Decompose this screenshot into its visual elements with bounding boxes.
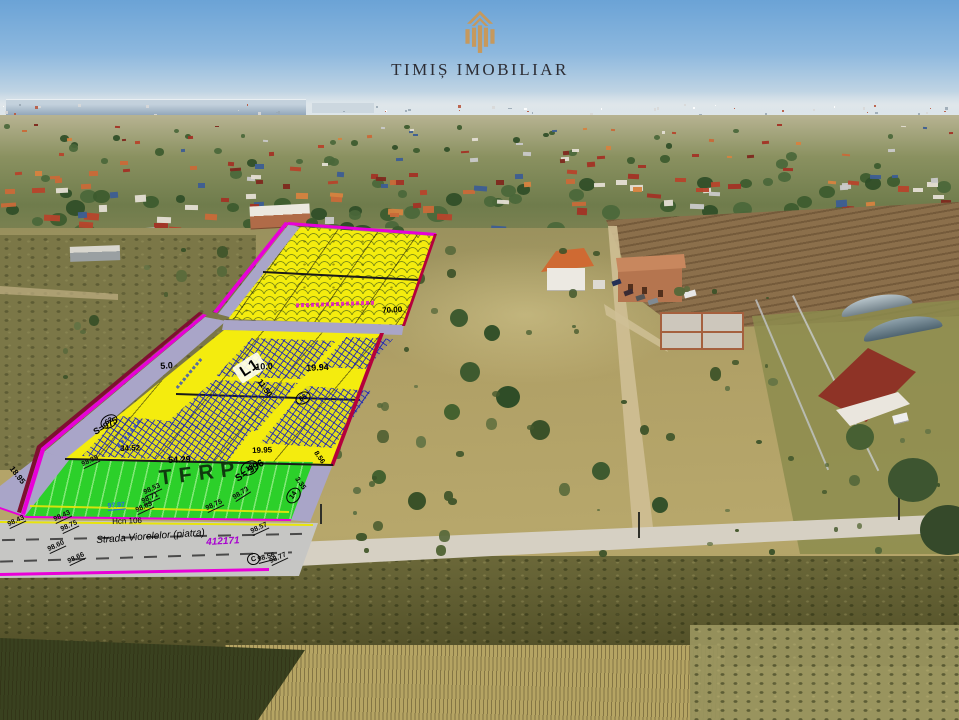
- field-bush: [710, 367, 722, 381]
- field-bush: [732, 360, 738, 365]
- dim-34-52: 34.52: [120, 444, 140, 453]
- field-bush: [559, 483, 570, 496]
- field-bush: [526, 330, 532, 335]
- field-bush: [416, 436, 426, 447]
- field-bush: [574, 329, 579, 334]
- field-bush: [436, 545, 446, 556]
- brand-name: TIMIȘ IMOBILIAR: [380, 60, 580, 80]
- field-bush: [725, 386, 730, 391]
- field-bush: [937, 483, 941, 487]
- field-bush: [849, 475, 860, 486]
- building-columns-icon: [457, 8, 503, 58]
- field-bush: [825, 463, 829, 467]
- field-bush: [364, 548, 369, 553]
- field-bush: [63, 348, 69, 354]
- field-bush: [765, 364, 769, 368]
- field-bush: [559, 248, 566, 254]
- field-bush: [788, 456, 794, 462]
- field-bush: [74, 322, 81, 330]
- field-bush: [63, 375, 69, 379]
- field-bush: [356, 533, 367, 541]
- field-bush: [766, 297, 769, 300]
- field-bush: [431, 308, 438, 313]
- field-bush: [181, 248, 186, 252]
- field-bush: [593, 251, 600, 256]
- field-bush: [89, 315, 99, 326]
- field-bush: [822, 490, 827, 494]
- dim-19-94: 19.94: [306, 363, 329, 373]
- field-bush: [381, 402, 389, 412]
- street-cad-number: 412171: [206, 536, 240, 548]
- field-bush: [372, 476, 377, 481]
- field-bush: [445, 246, 455, 255]
- dim-10-0: 10.0: [255, 362, 273, 372]
- field-bush: [80, 330, 86, 334]
- field-bush: [492, 391, 501, 398]
- field-bush: [925, 429, 931, 434]
- field-bush: [572, 325, 576, 328]
- field-bush: [377, 430, 388, 443]
- brand-logo: TIMIȘ IMOBILIAR: [380, 4, 580, 84]
- field-bush: [599, 550, 607, 557]
- field-bush: [875, 547, 882, 554]
- field-bush: [353, 511, 357, 515]
- field-bush: [666, 433, 675, 440]
- field-bush: [712, 289, 716, 293]
- field-bush: [857, 523, 863, 529]
- field-bush: [414, 385, 418, 388]
- field-bush: [707, 542, 713, 546]
- field-bush: [527, 425, 534, 430]
- field-bush: [447, 269, 456, 277]
- field-bush: [834, 527, 838, 532]
- hcn-label: Hcn 106: [112, 517, 142, 526]
- field-bush: [353, 487, 361, 494]
- field-bush: [900, 438, 905, 443]
- field-bush: [373, 521, 383, 531]
- field-bush: [768, 378, 779, 386]
- field-bush: [369, 481, 376, 487]
- elevation-mark-blue: 97.97: [107, 502, 125, 511]
- scene: L1 TFRP 5.0 10.0 19.94 70.00 54.29 34.52…: [0, 0, 959, 720]
- field-bush: [217, 246, 229, 257]
- dim-54-29: 54.29: [168, 455, 191, 465]
- field-bush: [674, 287, 685, 296]
- field-bush: [439, 530, 449, 542]
- field-bush: [569, 289, 577, 297]
- dim-70-00: 70.00: [382, 306, 402, 315]
- field-bush: [144, 265, 149, 269]
- field-bush: [404, 347, 409, 352]
- field-bush: [735, 529, 740, 533]
- field-bush: [621, 400, 627, 404]
- field-bush: [486, 418, 497, 430]
- dim-19-95: 19.95: [252, 446, 272, 455]
- field-bush: [217, 266, 227, 276]
- field-bush: [769, 549, 775, 555]
- field-bush: [640, 425, 649, 436]
- field-bush: [756, 440, 762, 445]
- field-bush: [176, 270, 186, 282]
- field-bush: [164, 292, 168, 296]
- dim-5-0: 5.0: [160, 361, 173, 371]
- field-bush: [597, 509, 600, 512]
- field-bush: [448, 498, 458, 505]
- field-bush: [725, 509, 729, 512]
- field-bush: [456, 451, 464, 456]
